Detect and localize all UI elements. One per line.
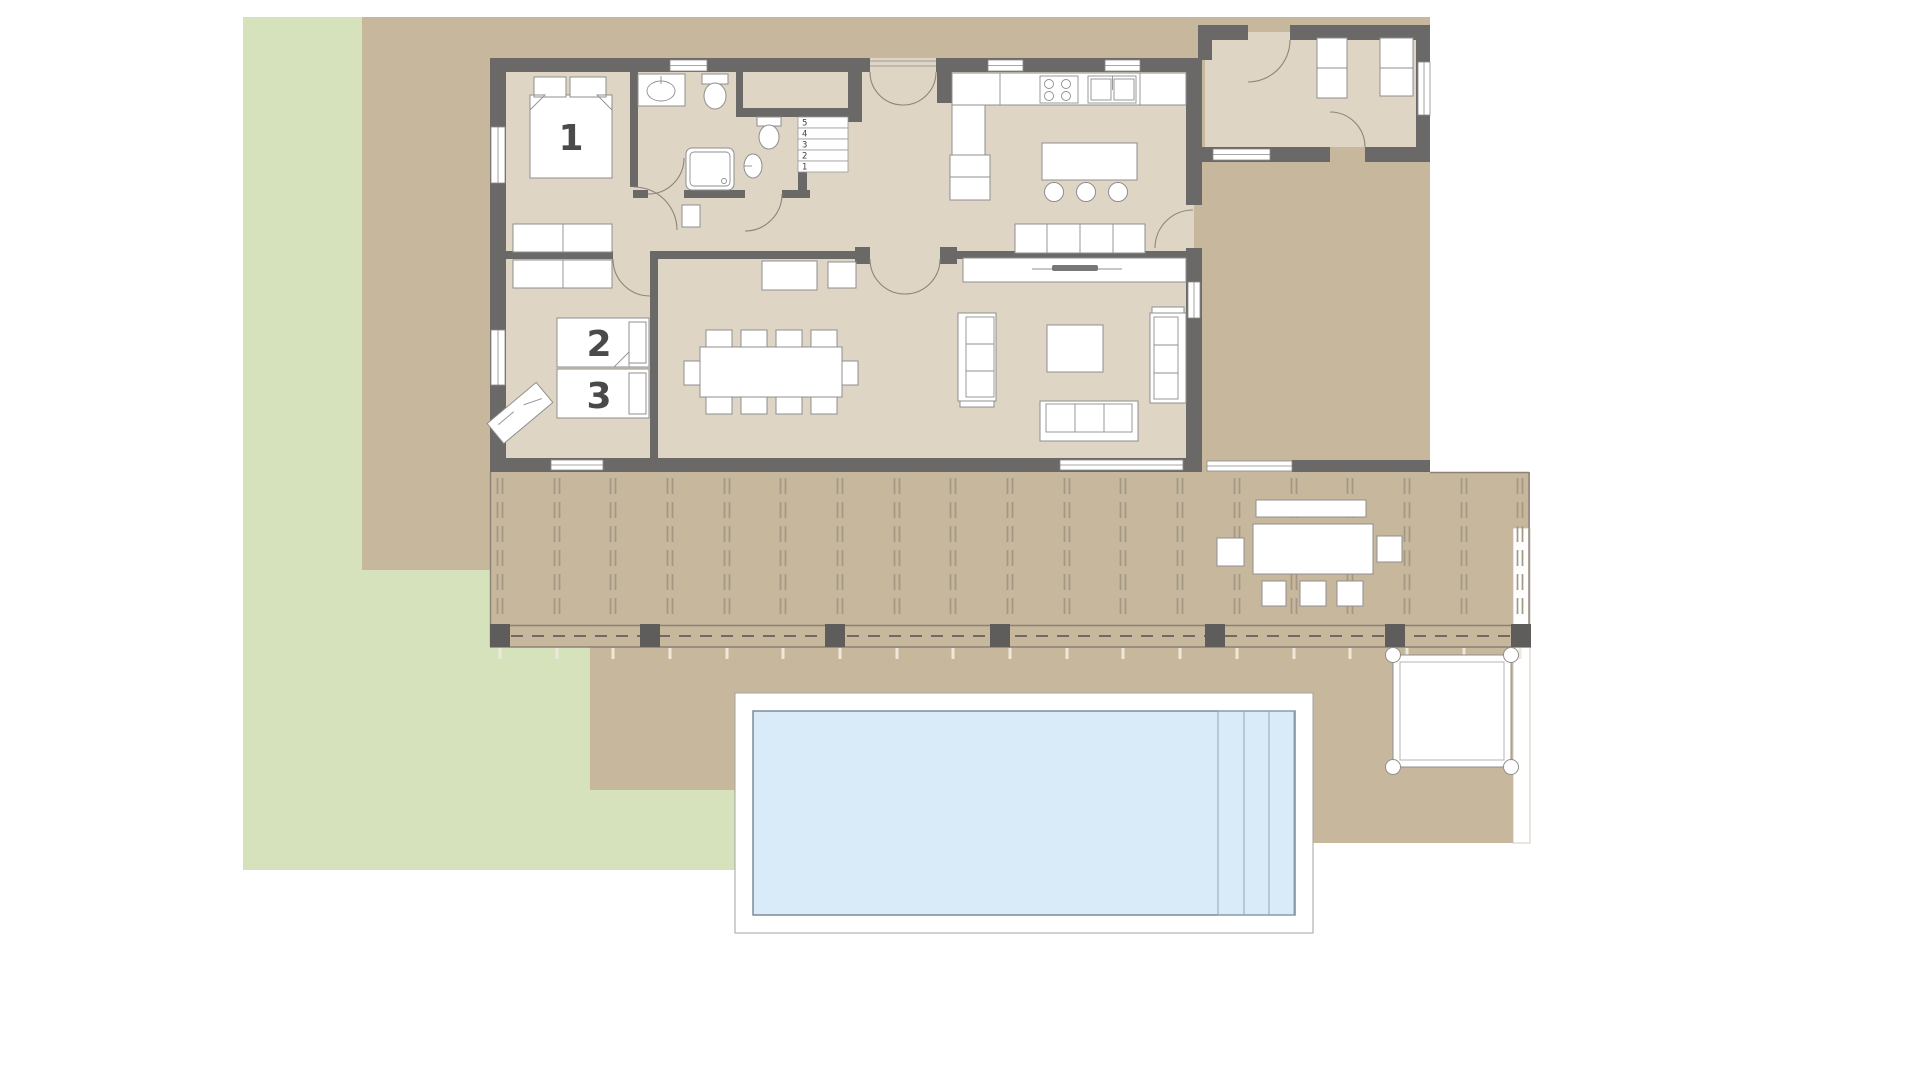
dining-chair	[811, 397, 837, 414]
dining-table	[700, 347, 842, 397]
window	[670, 60, 707, 71]
window	[1213, 149, 1270, 160]
terrace-post	[1205, 624, 1225, 647]
terrace-post	[1511, 624, 1531, 647]
dining-chair	[776, 330, 802, 347]
bar-stool	[1077, 183, 1096, 202]
window	[1418, 62, 1430, 115]
window	[1188, 282, 1200, 318]
terrace-ground	[490, 472, 1530, 647]
dining-chair-end	[842, 361, 858, 385]
sideboard-small	[828, 262, 856, 288]
outdoor-bench	[1256, 500, 1366, 517]
dining-chair	[811, 330, 837, 347]
floor-plan: 1 2 3	[0, 0, 1920, 1080]
stair-step-number: 2	[802, 152, 807, 162]
terrace-post	[640, 624, 660, 647]
room-label-2: 2	[586, 324, 611, 365]
sliding-door	[551, 460, 603, 470]
ground-left-strip	[362, 17, 490, 570]
pillow	[629, 373, 646, 414]
counter-column	[952, 105, 985, 155]
stairs: 54321	[798, 117, 848, 173]
dining-chair	[776, 397, 802, 414]
window	[491, 330, 505, 385]
bar-stool	[1109, 183, 1128, 202]
outdoor-chair	[1262, 581, 1286, 606]
outdoor-table	[1253, 524, 1373, 574]
terrace-post	[1385, 624, 1405, 647]
window	[1105, 60, 1140, 71]
outdoor-chair	[1300, 581, 1326, 606]
fridge	[950, 155, 990, 200]
pillow	[629, 322, 646, 363]
coffee-table	[1047, 325, 1103, 372]
window	[491, 127, 505, 183]
entrance	[870, 58, 936, 72]
shower	[686, 148, 734, 190]
wardrobe	[513, 260, 612, 288]
kitchen-counter	[952, 73, 1186, 105]
wardrobe	[513, 224, 612, 252]
pool	[753, 711, 1295, 915]
sun-deck-pergola	[1386, 648, 1519, 775]
utility-door-gap	[1330, 147, 1365, 162]
bar-stool	[1045, 183, 1064, 202]
terrace-post	[990, 624, 1010, 647]
terrace-post	[825, 624, 845, 647]
stair-step-number: 5	[802, 119, 807, 129]
sofa-right	[1150, 307, 1186, 403]
dining-chair	[706, 397, 732, 414]
pillow	[534, 77, 566, 97]
room-label-1: 1	[558, 118, 583, 159]
sofa-left	[958, 313, 996, 407]
room-label-3: 3	[586, 376, 611, 417]
hall-cabinet	[682, 205, 700, 227]
dining-chair	[741, 397, 767, 414]
dining-chair	[706, 330, 732, 347]
toilet	[702, 74, 728, 109]
outdoor-chair	[1337, 581, 1363, 606]
pergola-post	[1504, 648, 1519, 663]
window	[1207, 461, 1292, 471]
stair-step-number: 3	[802, 141, 807, 151]
window	[988, 60, 1023, 71]
stair-step-number: 1	[802, 163, 807, 173]
toilet	[757, 117, 781, 149]
pergola-post	[1386, 648, 1401, 663]
terrace-post	[490, 624, 510, 647]
floor-plan-canvas: 1 2 3	[0, 0, 1920, 1080]
sliding-door	[1060, 460, 1183, 470]
dining-chair	[741, 330, 767, 347]
stair-step-number: 4	[802, 130, 807, 140]
sofa-bottom	[1040, 401, 1138, 441]
dining-chair-end	[684, 361, 700, 385]
pergola-post	[1386, 760, 1401, 775]
outdoor-chair	[1217, 538, 1244, 566]
kitchen-island	[1042, 143, 1137, 180]
pillow	[570, 77, 606, 97]
sideboard	[762, 261, 817, 290]
pergola-post	[1504, 760, 1519, 775]
tv	[1052, 265, 1098, 271]
outdoor-chair	[1377, 536, 1402, 562]
utility-cabinet	[1380, 38, 1413, 96]
side-path	[1513, 528, 1530, 843]
ground-top-strip	[490, 17, 1186, 58]
washbasin	[744, 154, 762, 178]
